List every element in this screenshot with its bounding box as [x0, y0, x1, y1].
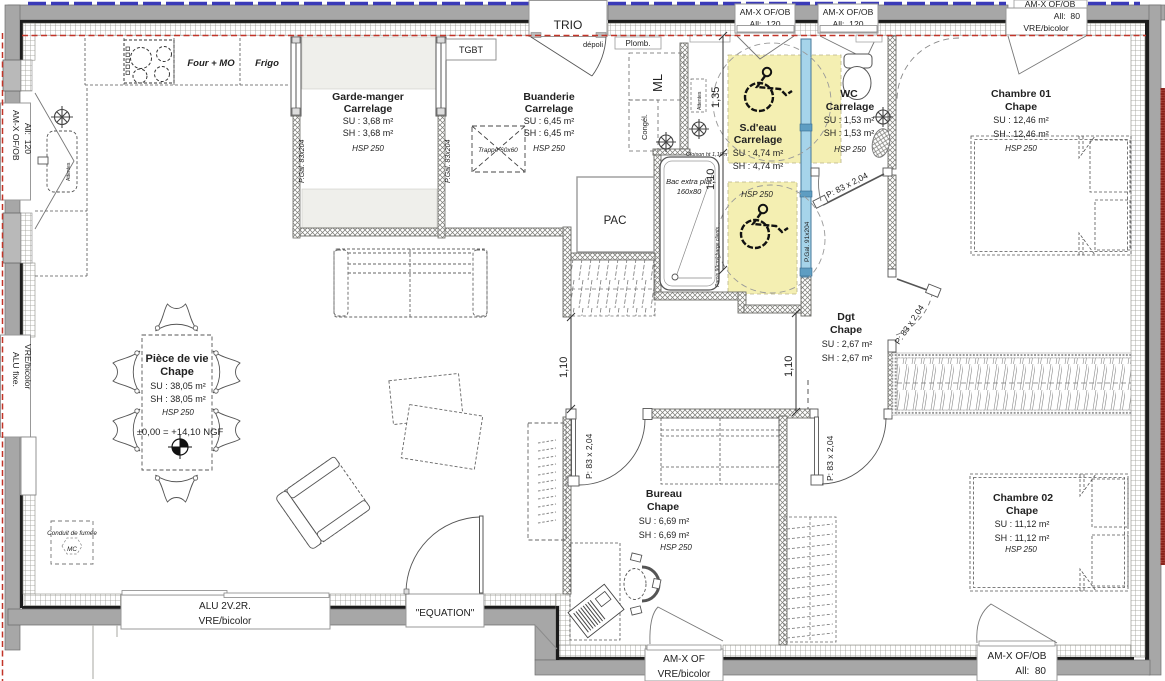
svg-text:HSP 250: HSP 250: [352, 144, 384, 153]
svg-text:Trappe 60x60: Trappe 60x60: [478, 147, 518, 154]
svg-text:MC: MC: [67, 546, 77, 553]
svg-text:Buanderie: Buanderie: [523, 91, 575, 103]
svg-text:Carrelage: Carrelage: [525, 103, 574, 115]
svg-text:All: 120: All: 120: [23, 123, 33, 154]
svg-text:VRE/bicolor: VRE/bicolor: [1023, 23, 1069, 33]
svg-text:TRIO: TRIO: [554, 18, 583, 32]
svg-text:SU : 1,53 m²: SU : 1,53 m²: [824, 115, 875, 125]
svg-text:SH : 11,12 m²: SH : 11,12 m²: [995, 533, 1050, 543]
svg-text:Pièce de vie: Pièce de vie: [146, 353, 209, 365]
svg-text:AM-X OF/OB: AM-X OF/OB: [988, 651, 1047, 662]
svg-text:Chambre 02: Chambre 02: [993, 492, 1053, 504]
svg-text:SH : 4,74 m²: SH : 4,74 m²: [733, 161, 784, 171]
svg-text:SU : 38,05 m²: SU : 38,05 m²: [150, 381, 206, 391]
svg-text:AM-X OF: AM-X OF: [663, 654, 705, 665]
svg-text:P.Gal. 83x204: P.Gal. 83x204: [445, 139, 452, 183]
svg-text:Chape: Chape: [1005, 101, 1037, 113]
svg-text:P.Gal. 91x204: P.Gal. 91x204: [804, 221, 811, 262]
svg-text:PAC: PAC: [604, 215, 627, 227]
svg-text:Attentes: Attentes: [66, 162, 72, 181]
svg-text:1,35: 1,35: [710, 87, 722, 108]
svg-text:Attentes: Attentes: [697, 91, 703, 110]
svg-text:AM-X OF/OB: AM-X OF/OB: [11, 110, 21, 161]
svg-text:1,10: 1,10: [783, 356, 795, 377]
svg-text:SH : 3,68 m²: SH : 3,68 m²: [343, 128, 394, 138]
svg-text:Conduit de fumée: Conduit de fumée: [47, 530, 97, 537]
svg-text:HSP 250: HSP 250: [741, 190, 773, 199]
svg-text:Plomb.: Plomb.: [626, 39, 651, 48]
svg-text:Congél.: Congél.: [640, 114, 649, 140]
svg-text:SH : 38,05 m²: SH : 38,05 m²: [150, 394, 206, 404]
svg-text:SU : 3,68 m²: SU : 3,68 m²: [343, 116, 394, 126]
svg-text:S.d'eau: S.d'eau: [740, 122, 777, 134]
svg-text:Garde-manger: Garde-manger: [332, 91, 404, 103]
svg-text:SH : 6,69 m²: SH : 6,69 m²: [639, 530, 690, 540]
svg-text:SU : 6,45 m²: SU : 6,45 m²: [524, 116, 575, 126]
svg-text:SU : 6,69 m²: SU : 6,69 m²: [639, 516, 690, 526]
svg-text:VRE/bicolor: VRE/bicolor: [23, 344, 33, 390]
svg-text:SH : 12,46 m²: SH : 12,46 m²: [993, 129, 1049, 139]
svg-text:ML: ML: [650, 74, 665, 92]
svg-text:Bureau: Bureau: [646, 488, 682, 500]
svg-text:1,10: 1,10: [705, 169, 717, 190]
svg-text:Carrelage: Carrelage: [826, 101, 875, 113]
svg-text:Chape: Chape: [160, 366, 194, 378]
svg-text:All: 80: All: 80: [1054, 11, 1080, 21]
svg-text:Chambre 01: Chambre 01: [991, 88, 1051, 100]
svg-text:Chape: Chape: [830, 324, 862, 336]
svg-text:HSP 250: HSP 250: [162, 408, 194, 417]
svg-text:SU : 11,12 m²: SU : 11,12 m²: [995, 519, 1050, 529]
svg-text:HSP 250: HSP 250: [660, 543, 692, 552]
svg-text:HSP 250: HSP 250: [533, 144, 565, 153]
svg-text:160x80: 160x80: [677, 187, 702, 196]
svg-text:VRE/bicolor: VRE/bicolor: [658, 669, 711, 680]
svg-text:ALU fixe.: ALU fixe.: [11, 352, 21, 387]
svg-text:SU : 2,67 m²: SU : 2,67 m²: [822, 339, 873, 349]
svg-text:AM-X OF/OB: AM-X OF/OB: [823, 7, 874, 17]
svg-text:HSP 250: HSP 250: [1005, 144, 1037, 153]
svg-text:ALU 2V.2R.: ALU 2V.2R.: [199, 601, 251, 612]
svg-text:Frigo: Frigo: [255, 58, 279, 69]
svg-text:P.Gal. 83x204: P.Gal. 83x204: [299, 139, 306, 183]
svg-text:Four + MO: Four + MO: [187, 58, 235, 69]
svg-text:SU : 4,74 m²: SU : 4,74 m²: [733, 148, 784, 158]
svg-text:Carrelage: Carrelage: [344, 103, 393, 115]
svg-text:Carrelage: Carrelage: [734, 134, 783, 146]
svg-text:Parois 90cm/charge clients: Parois 90cm/charge clients: [715, 226, 721, 287]
svg-text:SH : 2,67 m²: SH : 2,67 m²: [822, 353, 873, 363]
svg-text:SH : 6,45 m²: SH : 6,45 m²: [524, 128, 575, 138]
svg-text:HSP 250: HSP 250: [1005, 545, 1037, 554]
svg-text:AM-X OF/OB: AM-X OF/OB: [740, 7, 791, 17]
svg-text:Chape: Chape: [1006, 505, 1038, 517]
svg-text:All: 80: All: 80: [1015, 666, 1046, 677]
svg-text:P: 83 x 2,04: P: 83 x 2,04: [825, 435, 835, 481]
svg-text:Dgt: Dgt: [837, 311, 855, 323]
svg-text:"EQUATION": "EQUATION": [416, 608, 475, 619]
svg-text:Chape: Chape: [647, 501, 679, 513]
svg-text:P: 83 x 2,04: P: 83 x 2,04: [584, 433, 594, 479]
svg-text:VRE/bicolor: VRE/bicolor: [199, 616, 252, 627]
svg-text:HSP 250: HSP 250: [834, 145, 866, 154]
svg-text:SU : 12,46 m²: SU : 12,46 m²: [993, 115, 1049, 125]
svg-text:WC: WC: [840, 88, 858, 100]
svg-text:SH : 1,53 m²: SH : 1,53 m²: [824, 128, 875, 138]
svg-text:1,10: 1,10: [558, 357, 570, 378]
svg-text:TGBT: TGBT: [459, 45, 484, 55]
svg-text:dépoli: dépoli: [583, 40, 603, 49]
